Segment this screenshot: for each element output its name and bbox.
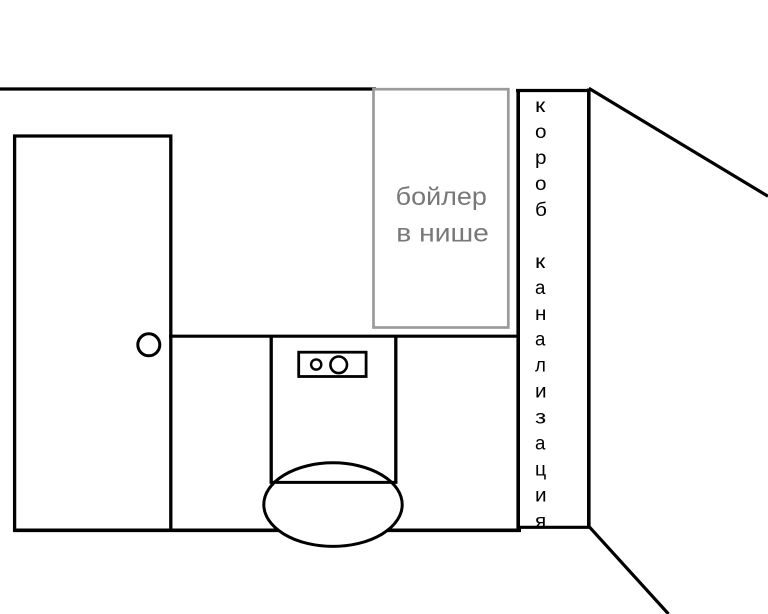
svg-text:л: л <box>535 356 546 377</box>
svg-text:о: о <box>535 174 547 195</box>
svg-text:з: з <box>535 408 546 429</box>
svg-text:ц: ц <box>535 460 546 481</box>
svg-text:к: к <box>535 252 546 273</box>
svg-text:о: о <box>535 122 547 143</box>
svg-text:и: и <box>535 382 547 403</box>
svg-text:в нише: в нише <box>396 220 489 248</box>
svg-text:р: р <box>535 148 547 169</box>
svg-text:н: н <box>535 304 546 325</box>
svg-text:а: а <box>535 278 546 299</box>
svg-text:я: я <box>535 512 546 533</box>
svg-text:а: а <box>535 330 546 351</box>
svg-text:б: б <box>535 200 547 221</box>
svg-text:бойлер: бойлер <box>396 183 487 211</box>
svg-text:а: а <box>535 434 546 455</box>
svg-text:и: и <box>535 486 547 507</box>
svg-text:к: к <box>535 96 546 117</box>
